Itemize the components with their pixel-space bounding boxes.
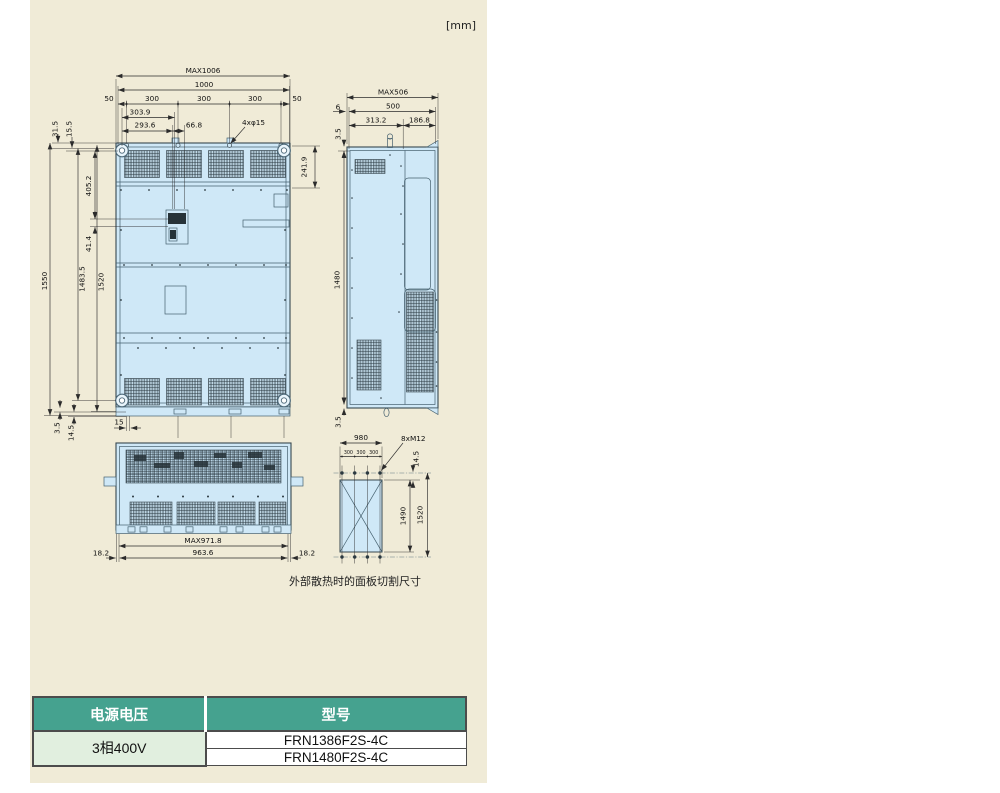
bottom-handle-left	[104, 477, 116, 486]
model-table: 电源电压 型号 3相400V FRN1386F2S-4C FRN1480F2S-…	[32, 696, 467, 767]
dim-side-max-depth: MAX506	[378, 88, 409, 97]
dim-bottom-left: 18.2	[93, 549, 109, 558]
side-view: MAX506 500 6 313.2 186.8 3.5 1480 3.5	[333, 88, 439, 428]
dim-front-height-frame: 1520	[97, 272, 106, 291]
front-view: MAX1006 1000 50 300 300 300 50 303.9 293…	[40, 66, 320, 441]
dim-side-top: 3.5	[334, 128, 343, 140]
dim-front-width: 1000	[195, 80, 214, 89]
side-eyebolt-top	[388, 139, 393, 148]
dim-front-pitch-2: 300	[197, 94, 211, 103]
dim-side-d1: 313.2	[366, 116, 387, 125]
dim-front-pitch-3: 300	[248, 94, 262, 103]
dim-front-margin-right: 50	[292, 94, 302, 103]
dim-front-holes-callout: 4xφ15	[242, 118, 265, 127]
dim-front-r1: 241.9	[300, 156, 309, 177]
front-cabinet-body	[116, 143, 290, 407]
cutout-caption: 外部散热时的面板切割尺寸	[289, 574, 421, 588]
dim-side-bottom: 3.5	[334, 416, 343, 428]
dim-front-margin-left: 50	[104, 94, 114, 103]
dim-front-top-left-2: 15.5	[65, 121, 74, 137]
bottom-view: MAX971.8 963.6 18.2 18.2	[93, 443, 315, 562]
dim-side-height: 1480	[333, 270, 342, 289]
bottom-grilles	[130, 502, 286, 525]
dim-side-offset: 6	[336, 103, 341, 112]
dim-cutout-bolts: 8xM12	[401, 434, 426, 443]
side-rear-grille	[407, 292, 434, 392]
dim-cutout-hole-pitch: 1520	[416, 505, 425, 524]
dim-front-c: 66.8	[186, 121, 203, 130]
dim-front-max-width: MAX1006	[186, 66, 221, 75]
table-cell-model-1: FRN1386F2S-4C	[206, 731, 467, 749]
dim-front-bottom-left-1: 3.5	[53, 422, 62, 434]
dim-bottom-max-width: MAX971.8	[184, 536, 222, 545]
bottom-handle-right	[291, 477, 303, 486]
dim-side-depth: 500	[386, 102, 400, 111]
cutout-view: 980 300 300 300 8xM12 14.5 1490 1520	[334, 433, 432, 564]
dim-cutout-height: 1490	[399, 506, 408, 525]
dim-cutout-offset: 14.5	[412, 451, 421, 467]
side-top-grille	[355, 160, 385, 174]
dim-front-pitch-1: 300	[145, 94, 159, 103]
dim-cutout-width: 980	[354, 433, 368, 442]
dim-cutout-pitch-1: 300	[344, 450, 353, 456]
dim-bottom-width: 963.6	[193, 548, 214, 557]
bottom-dimensions: MAX971.8 963.6 18.2 18.2	[93, 534, 315, 562]
dim-front-v1: 405.2	[84, 176, 93, 197]
dim-cutout-pitch-3: 300	[369, 450, 378, 456]
dim-bottom-right: 18.2	[299, 549, 315, 558]
table-cell-model-2: FRN1480F2S-4C	[206, 749, 467, 766]
dim-front-a: 303.9	[130, 108, 151, 117]
side-eyebolt-bottom	[384, 408, 389, 416]
dim-front-v2: 41.4	[84, 236, 93, 253]
dim-front-height-overall: 1550	[40, 271, 49, 290]
side-bottom-grille	[357, 340, 381, 390]
dimension-drawing: MAX1006 1000 50 300 300 300 50 303.9 293…	[0, 0, 1000, 793]
dim-front-bottom-left-2: 14.5	[67, 425, 76, 441]
front-base	[116, 407, 290, 416]
dim-front-foot: 15	[114, 418, 123, 427]
dim-front-top-left-1: 31.5	[51, 121, 60, 137]
dim-side-d2: 186.8	[409, 116, 430, 125]
table-header-voltage: 电源电压	[33, 697, 206, 731]
table-cell-voltage: 3相400V	[33, 731, 206, 766]
dim-front-b: 293.6	[135, 121, 156, 130]
dim-front-height-holes: 1483.5	[78, 266, 87, 292]
table-header-model: 型号	[206, 697, 467, 731]
unit-label: [mm]	[446, 19, 476, 32]
dim-cutout-pitch-2: 300	[356, 450, 365, 456]
